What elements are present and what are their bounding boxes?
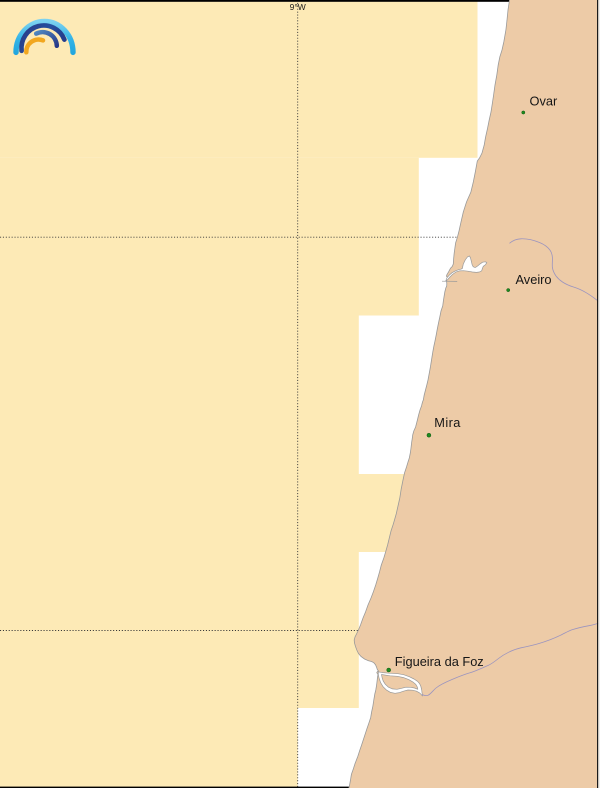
svg-text:9°W: 9°W xyxy=(290,2,306,12)
svg-text:Figueira da Foz: Figueira da Foz xyxy=(395,654,484,669)
svg-text:Aveiro: Aveiro xyxy=(516,272,552,287)
svg-text:Ovar: Ovar xyxy=(530,93,558,108)
svg-text:Mira: Mira xyxy=(434,415,461,430)
